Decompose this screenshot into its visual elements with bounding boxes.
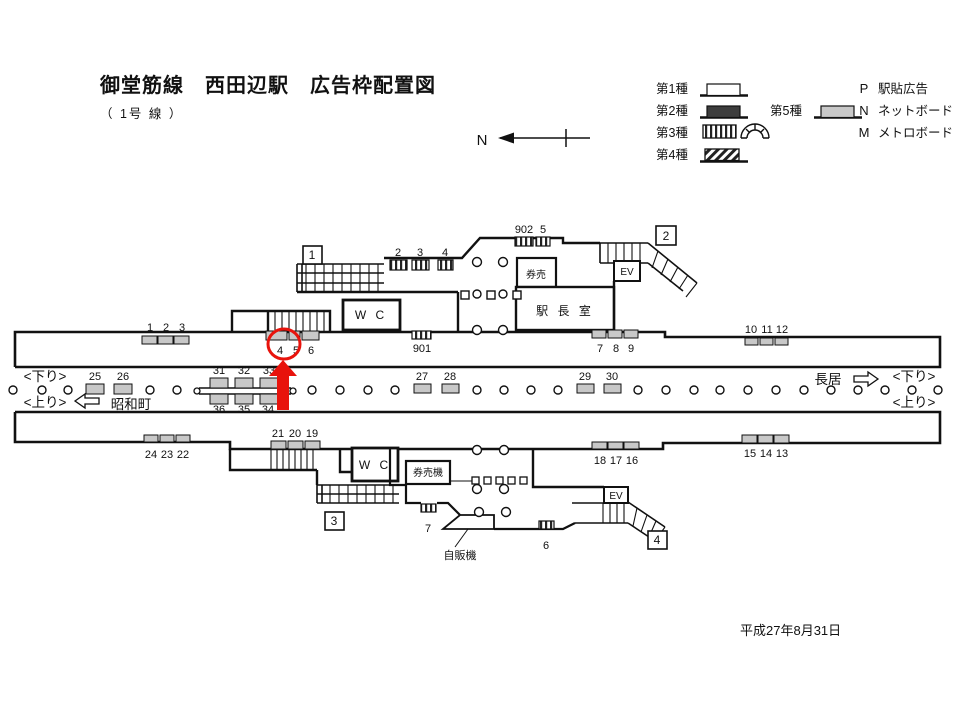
- ad-slot-label: 27: [416, 371, 428, 383]
- ad-slot-label: 6: [543, 540, 549, 552]
- ad-slot-label: 29: [579, 371, 591, 383]
- ad-slot-label: 31: [213, 365, 225, 377]
- ad-slot-label: 23: [161, 449, 173, 461]
- legend-type3-icon: [703, 124, 769, 138]
- ad-slot-label: 2: [163, 322, 169, 334]
- prev-station-label: 昭和町: [111, 397, 152, 412]
- ad-slot-label: 8: [613, 343, 619, 355]
- arrow-left-icon: [75, 394, 99, 408]
- svg-text:1: 1: [309, 248, 316, 262]
- stairs-1: [297, 264, 384, 292]
- direction-right-up: <上り>: [893, 395, 936, 410]
- platform-pillars: [9, 386, 942, 394]
- vending-machine-area: [443, 515, 494, 529]
- ticket-machine-label: 券売機: [413, 466, 443, 479]
- wc-room-lower-label: W C: [359, 458, 391, 472]
- station-diagram: 御堂筋線 西田辺駅 広告枠配置図 （ 1号 線 ） 平成27年8月31日 N 第…: [0, 0, 960, 720]
- ad-slot-label: 3: [179, 322, 185, 334]
- ad-slot-label: 32: [238, 365, 250, 377]
- north-compass-icon: N: [477, 129, 590, 149]
- direction-left-down: <下り>: [24, 369, 67, 384]
- ad-slot-label: 30: [606, 371, 618, 383]
- stairs-3: [317, 485, 399, 503]
- svg-text:2: 2: [663, 229, 670, 243]
- ad-slot-label: 21: [272, 428, 284, 440]
- next-station-label: 長居: [815, 372, 842, 387]
- ad-slot-label: 15: [744, 448, 756, 460]
- ad-slot-label: 28: [444, 371, 456, 383]
- lower-track-slots: 24 23 22 21 20 19 18 17 16 15 14 13: [144, 428, 789, 467]
- page-title: 御堂筋線 西田辺駅 広告枠配置図: [99, 73, 436, 97]
- ad-slot-label: 9: [628, 343, 634, 355]
- legend-type4-label: 第4種: [656, 148, 688, 162]
- stair-number-4: 4: [648, 531, 667, 549]
- legend-m-label: メトロボード: [878, 126, 953, 140]
- legend-type1-label: 第1種: [656, 82, 688, 96]
- ad-slot-label: 6: [308, 345, 314, 357]
- ad-slot-label: 14: [760, 448, 772, 460]
- legend-p-label: 駅貼広告: [878, 81, 928, 96]
- ad-slot-label: 36: [213, 404, 225, 416]
- compass-n-label: N: [477, 132, 488, 149]
- legend-p-code: P: [860, 81, 869, 96]
- ticket-office-label: 券売: [526, 268, 546, 281]
- ad-slot-label: 24: [145, 449, 157, 461]
- legend-type5-icon: [814, 106, 862, 118]
- ticket-gates-lower: [472, 477, 527, 484]
- elevator-lower-label: EV: [609, 491, 623, 502]
- ad-slot-label: 2: [395, 247, 401, 259]
- legend-type1-icon: [700, 84, 748, 96]
- elevator-upper-label: EV: [620, 267, 634, 278]
- ad-slot-label: 12: [776, 324, 788, 336]
- ad-slot-label: 17: [610, 455, 622, 467]
- direction-right-down: <下り>: [893, 369, 936, 384]
- stair-number-3: 3: [325, 512, 344, 530]
- legend-type5-label: 第5種: [770, 104, 802, 118]
- legend-type2-icon: [700, 106, 748, 118]
- ad-slot-label: 7: [597, 343, 603, 355]
- date-label: 平成27年8月31日: [740, 623, 841, 638]
- ad-slot-label: 18: [594, 455, 606, 467]
- ad-slot-label: 11: [761, 324, 772, 336]
- legend-type4-icon: [700, 149, 748, 162]
- vending-machine-label: 自販機: [444, 548, 477, 562]
- platform-slots: 25 26 27 28 29 30: [86, 371, 621, 394]
- legend-n-code: N: [859, 103, 868, 118]
- ad-slot-label: 7: [425, 523, 431, 535]
- station-master-label: 駅 長 室: [536, 303, 594, 318]
- legend-n-label: ネットボード: [878, 104, 953, 118]
- ad-slot-label: 3: [417, 247, 423, 259]
- stair-number-2: 2: [656, 226, 676, 245]
- ad-slot-label: 13: [776, 448, 788, 460]
- legend-m-code: M: [859, 125, 870, 140]
- ad-slot-label: 25: [89, 371, 101, 383]
- ticket-gates-upper: [461, 290, 521, 299]
- page-subtitle: （ 1号 線 ）: [100, 106, 183, 121]
- ad-slot-label: 34: [262, 404, 274, 416]
- ad-slot-label: 22: [177, 449, 189, 461]
- ad-slot-label: 1: [147, 322, 153, 334]
- svg-text:3: 3: [331, 514, 338, 528]
- stair-number-1: 1: [303, 246, 322, 264]
- ad-slot-label: 19: [306, 428, 318, 440]
- ad-slot-label: 16: [626, 455, 638, 467]
- ad-slot-label: 26: [117, 371, 129, 383]
- ad-slot-label: 4: [442, 247, 448, 259]
- upper-track-slots: 1 2 3 4 5 6 7 8 9 10 11 12: [142, 322, 788, 357]
- svg-text:4: 4: [654, 533, 661, 547]
- ad-slot-label: 901: [413, 343, 431, 355]
- legend-type2-label: 第2種: [656, 104, 688, 118]
- ad-slot-label: 10: [745, 324, 757, 336]
- legend-type3-label: 第3種: [656, 126, 688, 140]
- ad-slot-label: 902: [515, 224, 533, 236]
- ad-slot-label: 5: [540, 224, 546, 236]
- ad-placement-map-page: 御堂筋線 西田辺駅 広告枠配置図 （ 1号 線 ） 平成27年8月31日 N 第…: [0, 0, 960, 720]
- arrow-right-icon: [854, 372, 878, 386]
- legend: 第1種 第2種 第3種 第4種 第5種 P 駅貼広告 N ネットボード M メト: [656, 81, 953, 162]
- ad-slot-label-circled: 4: [277, 345, 283, 357]
- platform-strip: <下り> <上り> <下り> <上り> 昭和町 長居 31 32 33 36 3…: [9, 365, 942, 416]
- direction-left-up: <上り>: [24, 395, 67, 410]
- wc-room-upper-label: W C: [355, 308, 387, 322]
- ad-slot-label: 35: [238, 404, 250, 416]
- ad-slot-label: 20: [289, 428, 301, 440]
